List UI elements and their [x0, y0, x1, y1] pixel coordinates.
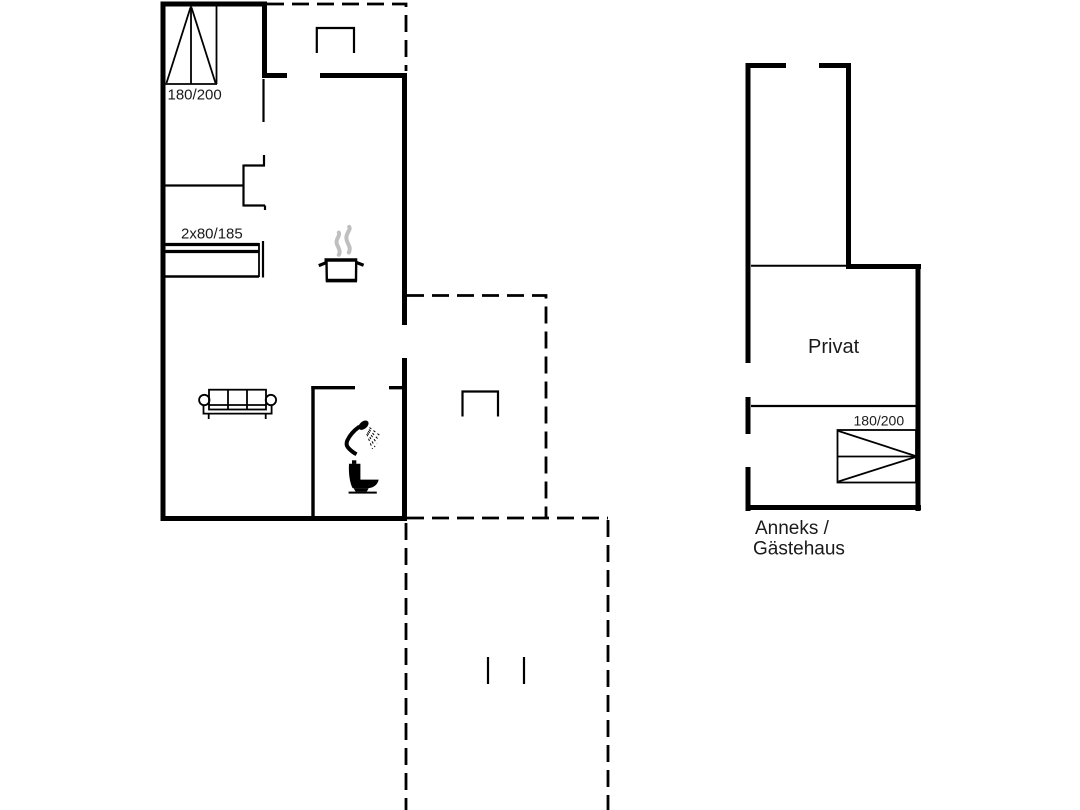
svg-text:Gästehaus: Gästehaus — [753, 539, 845, 560]
svg-text:Anneks /: Anneks / — [755, 518, 830, 539]
svg-text:180/200: 180/200 — [168, 87, 222, 104]
svg-text:2x80/185: 2x80/185 — [181, 226, 243, 243]
svg-text:180/200: 180/200 — [854, 413, 905, 429]
svg-text:Privat: Privat — [808, 336, 860, 358]
